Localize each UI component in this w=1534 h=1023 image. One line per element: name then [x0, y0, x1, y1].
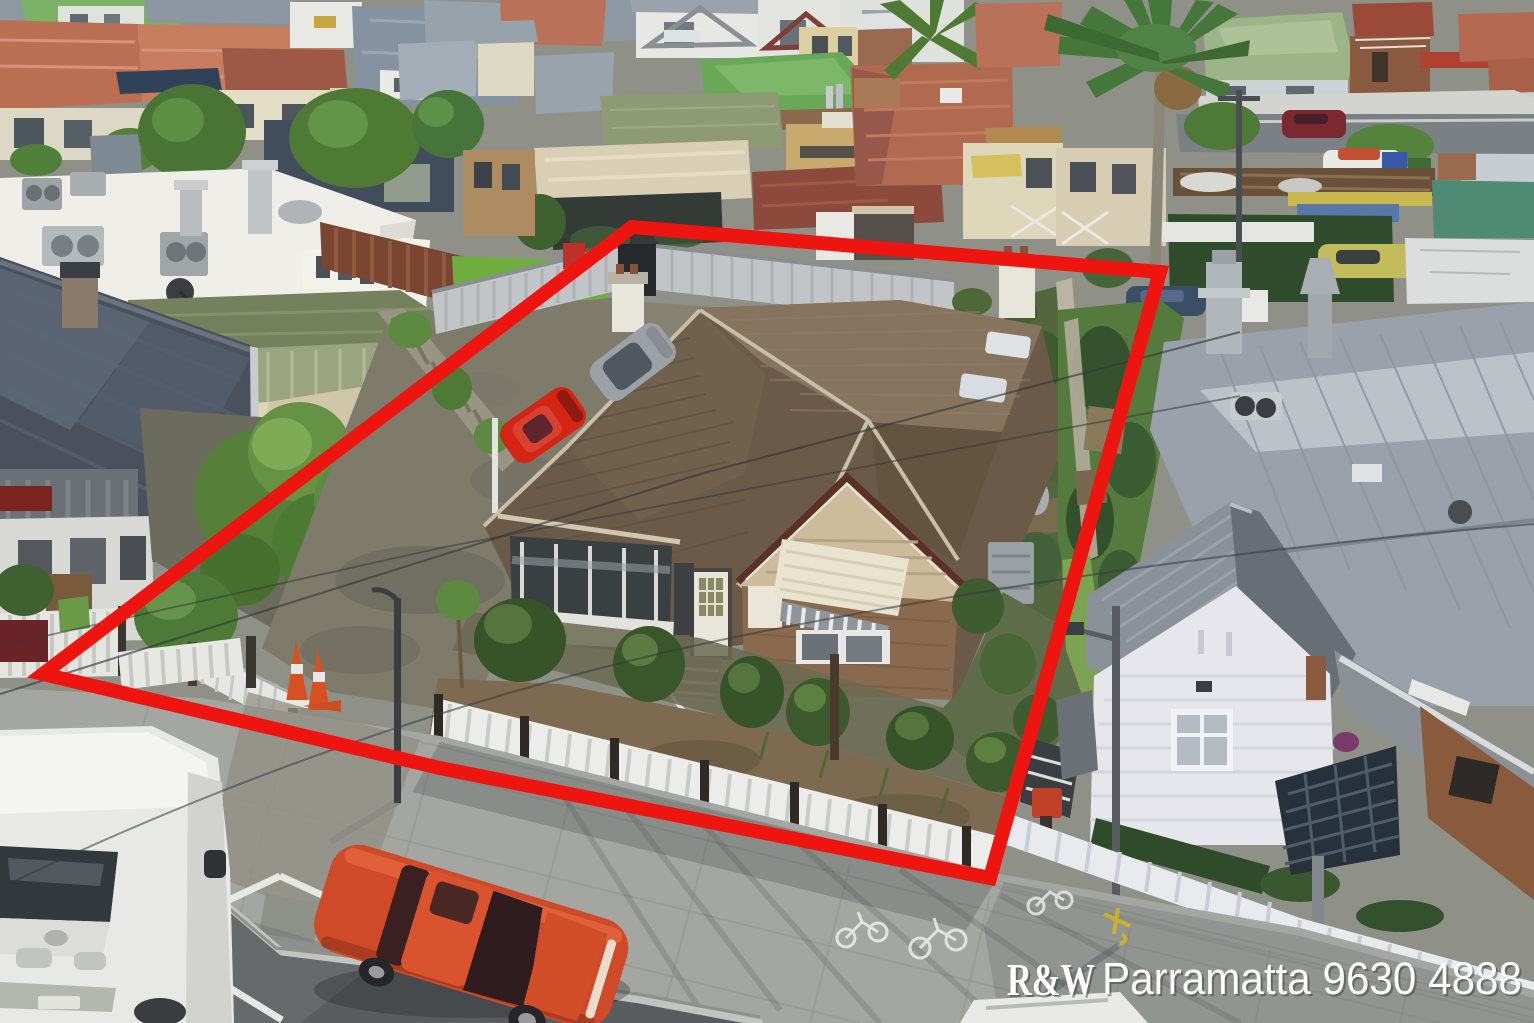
svg-text:R&W: R&W [1007, 954, 1095, 1005]
svg-text:Parramatta 9630 4888: Parramatta 9630 4888 [1102, 953, 1522, 1004]
